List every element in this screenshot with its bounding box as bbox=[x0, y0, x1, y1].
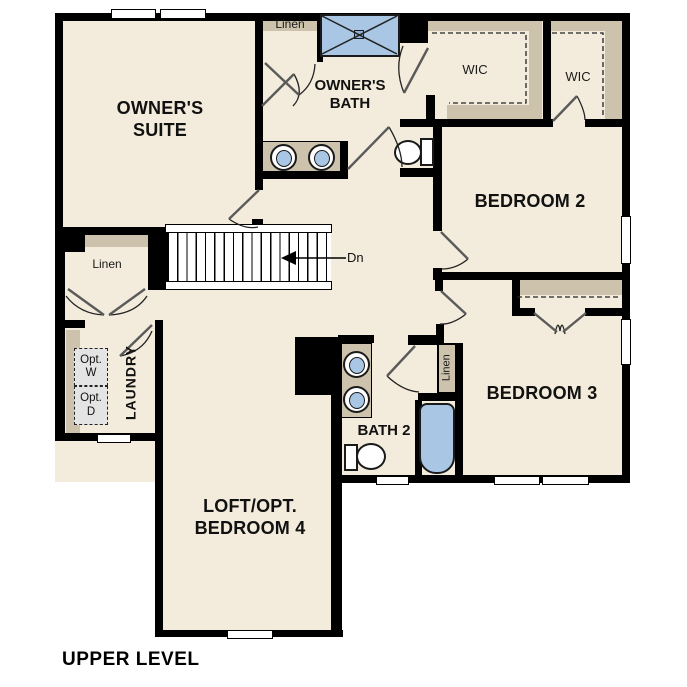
window bbox=[111, 9, 156, 19]
wic1-shelf-bottom bbox=[447, 105, 542, 119]
wall bbox=[55, 13, 63, 237]
room-label-owners-suite: OWNER'S SUITE bbox=[85, 98, 235, 142]
toilet-tank bbox=[420, 138, 434, 166]
wall bbox=[585, 308, 624, 316]
window bbox=[621, 319, 631, 365]
closet-label-linen-hall: Linen bbox=[72, 257, 142, 272]
room-label-wic1: WIC bbox=[450, 62, 500, 78]
wic2-shelf-right bbox=[605, 18, 622, 120]
wall bbox=[408, 335, 438, 345]
wall bbox=[340, 141, 348, 179]
wall bbox=[585, 119, 630, 127]
wall bbox=[543, 13, 551, 127]
washer-opt-box: Opt. W bbox=[74, 348, 108, 386]
wic1-shelf-right bbox=[529, 18, 542, 118]
room-label-owners-bath: OWNER'S BATH bbox=[300, 77, 400, 114]
stair-direction-label: Dn bbox=[347, 250, 377, 266]
wall bbox=[426, 95, 435, 121]
wall bbox=[435, 280, 443, 291]
floor-plan: OWNER'S SUITE OWNER'S BATH WIC WIC BEDRO… bbox=[0, 0, 687, 687]
room-label-wic2: WIC bbox=[553, 69, 603, 85]
bedroom3-closet-shelf bbox=[514, 280, 623, 295]
room-label-laundry: LAUNDRY bbox=[122, 333, 139, 433]
room-label-loft: LOFT/OPT. BEDROOM 4 bbox=[175, 496, 325, 540]
window bbox=[97, 434, 131, 443]
wall bbox=[58, 320, 85, 328]
wall bbox=[433, 272, 630, 280]
window bbox=[227, 630, 273, 639]
dryer-opt-box: Opt. D bbox=[74, 386, 108, 425]
stairs bbox=[168, 233, 331, 281]
sink-basin bbox=[349, 392, 365, 409]
wall bbox=[255, 171, 348, 179]
wall bbox=[418, 393, 458, 401]
wall bbox=[398, 13, 428, 43]
chase-void bbox=[295, 337, 341, 395]
room-label-bath2: BATH 2 bbox=[344, 422, 424, 440]
page-title: UPPER LEVEL bbox=[62, 649, 199, 671]
stair-railing bbox=[165, 224, 332, 233]
bathtub-symbol bbox=[419, 403, 455, 474]
sink-basin bbox=[349, 357, 365, 374]
window bbox=[621, 216, 631, 264]
wall bbox=[155, 320, 163, 637]
wall bbox=[255, 13, 263, 190]
wall bbox=[512, 308, 535, 316]
wall bbox=[55, 248, 65, 440]
wall bbox=[400, 119, 553, 127]
closet-label-linen-bath2: Linen bbox=[440, 345, 453, 391]
wall bbox=[455, 343, 463, 478]
window bbox=[160, 9, 206, 19]
wall bbox=[331, 385, 342, 637]
wall bbox=[338, 335, 374, 343]
window bbox=[494, 476, 540, 485]
toilet-symbol bbox=[356, 443, 386, 470]
stair-railing bbox=[165, 281, 332, 290]
closet-label-linen-top: Linen bbox=[263, 17, 317, 32]
shower-drain bbox=[354, 30, 364, 39]
wall bbox=[433, 127, 442, 231]
sink-basin bbox=[276, 150, 292, 167]
window bbox=[376, 476, 409, 485]
sink-basin bbox=[314, 150, 330, 167]
room-label-bedroom3: BEDROOM 3 bbox=[467, 383, 617, 405]
window bbox=[542, 476, 589, 485]
toilet-symbol bbox=[394, 140, 422, 165]
room-label-bedroom2: BEDROOM 2 bbox=[455, 191, 605, 213]
